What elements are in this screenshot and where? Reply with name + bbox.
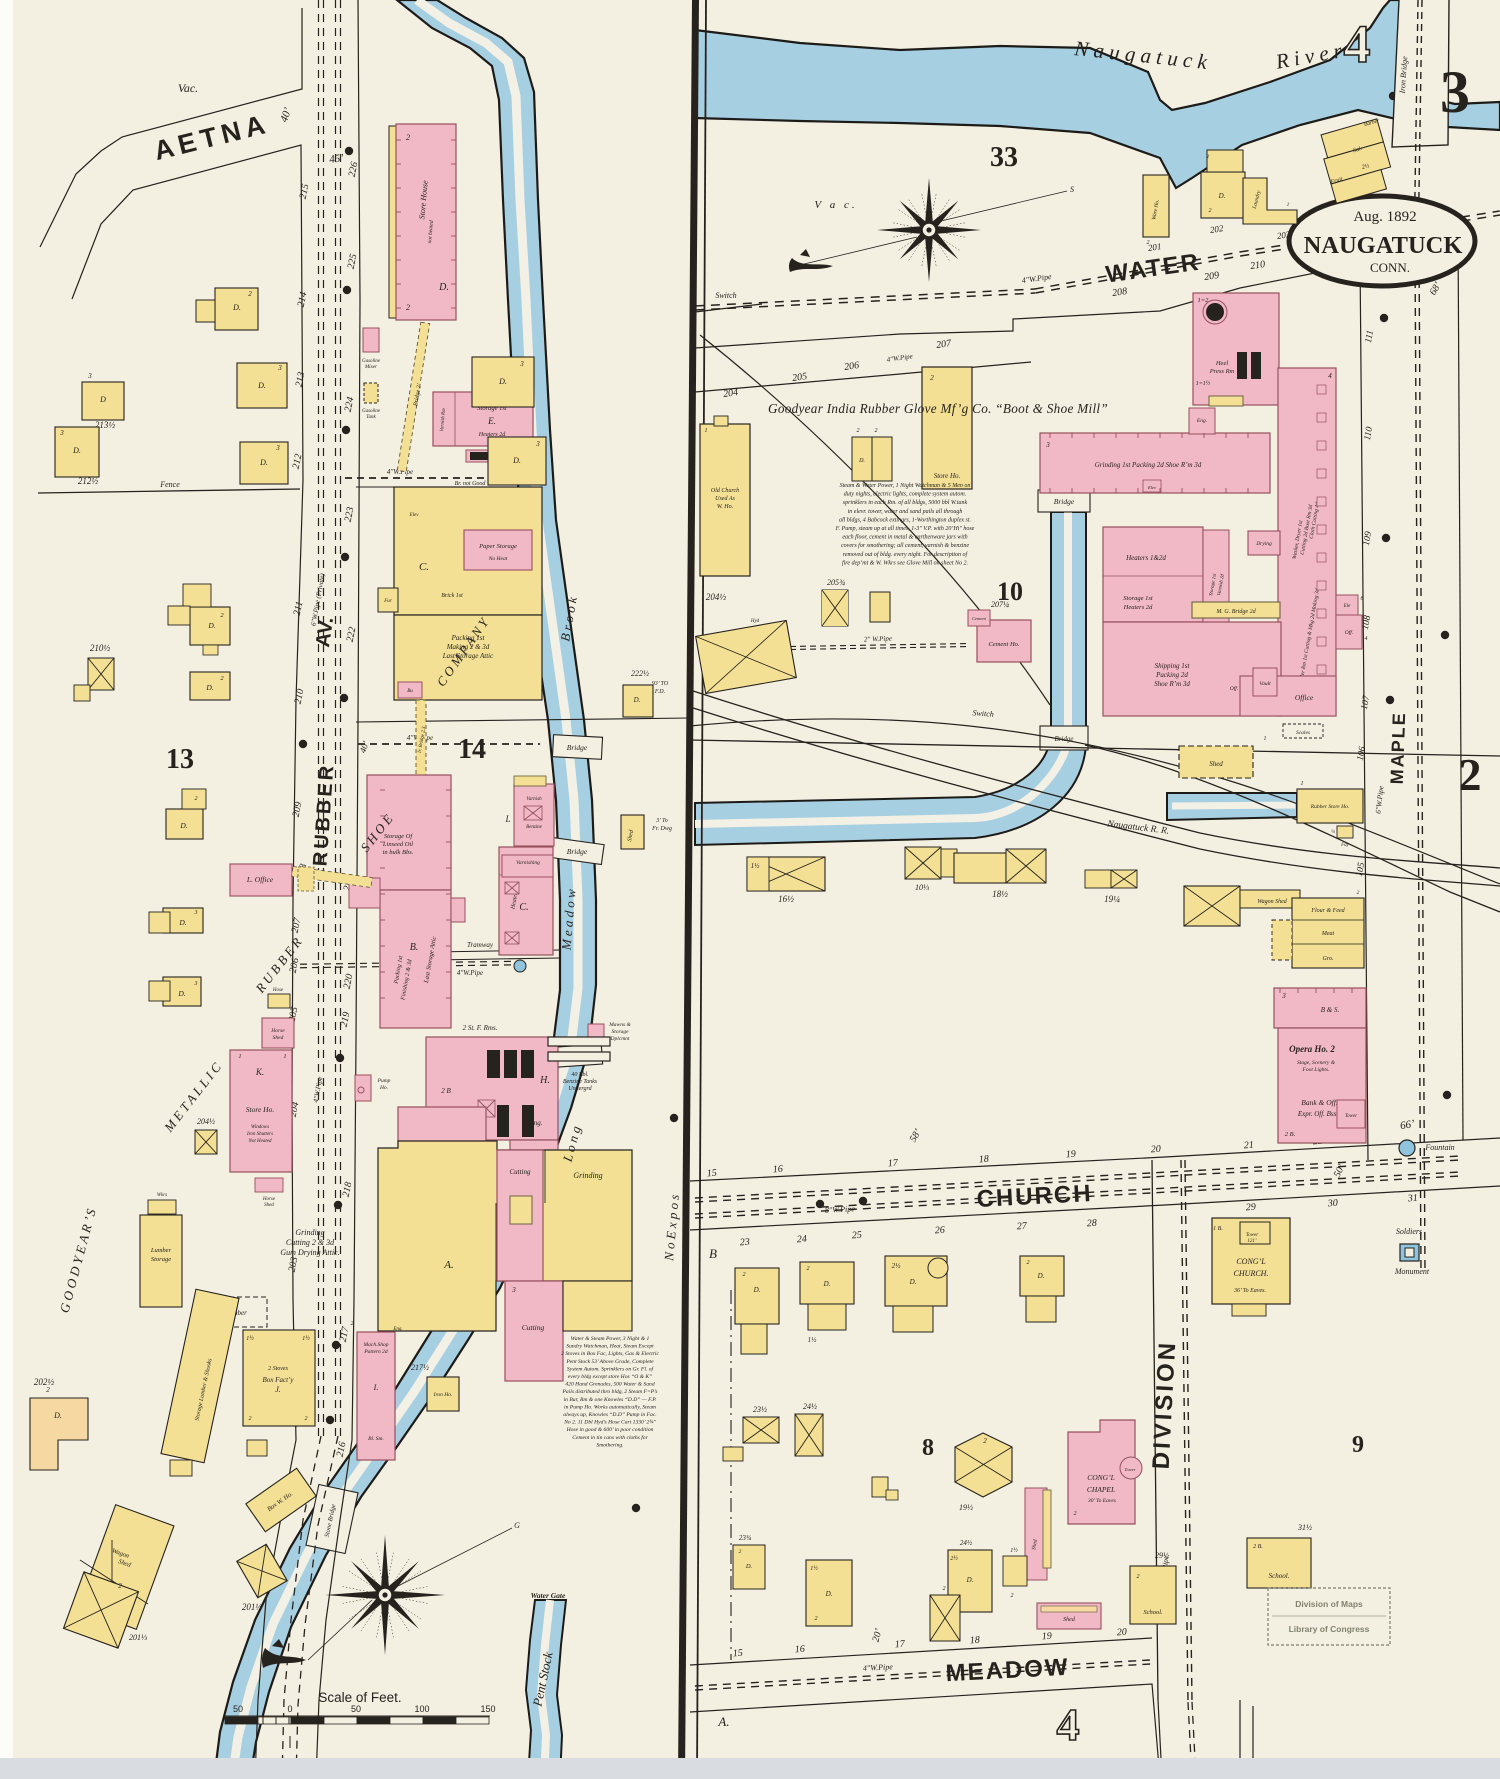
svg-text:2: 2 [1137,1574,1140,1580]
svg-text:Tower: Tower [1345,1114,1357,1119]
svg-text:Shed: Shed [273,1035,284,1041]
svg-text:D.: D. [823,1280,831,1288]
svg-text:Bl. Sm.: Bl. Sm. [368,1436,384,1442]
svg-text:Fountain: Fountain [1424,1143,1454,1152]
svg-text:2 B: 2 B [441,1087,451,1095]
svg-text:3: 3 [1440,59,1470,125]
svg-text:Wagon Shed: Wagon Shed [1257,899,1288,905]
svg-text:in Bur, Rm & one Knowles “D.D”: in Bur, Rm & one Knowles “D.D” — F.P. [564,1396,657,1403]
svg-text:Storage: Storage [611,1029,629,1035]
svg-text:33: 33 [990,142,1018,173]
svg-text:1: 1 [1299,890,1302,896]
svg-text:30: 30 [1326,1198,1338,1210]
svg-text:Pattern 2d: Pattern 2d [363,1349,388,1355]
svg-text:Opera Ho. 2: Opera Ho. 2 [1289,1044,1335,1054]
svg-text:2: 2 [807,1266,810,1272]
svg-text:Hyd: Hyd [750,619,760,624]
svg-text:1: 1 [1207,154,1210,160]
svg-text:Tower: Tower [1246,1233,1258,1238]
svg-text:4″W.Pipe: 4″W.Pipe [863,1662,894,1673]
svg-text:3: 3 [519,360,524,368]
svg-text:Cutting 2 & 3d: Cutting 2 & 3d [286,1238,335,1247]
svg-text:D.: D. [72,446,81,455]
svg-text:D.: D. [179,821,187,830]
svg-text:14: 14 [458,734,486,765]
svg-text:217½: 217½ [411,1363,429,1372]
svg-text:No 2. 11 Dbl Hyd’s Hose Cart: No 2. 11 Dbl Hyd’s Hose Cart 1330’ 2¾″ [563,1420,656,1426]
svg-text:150: 150 [480,1704,495,1714]
svg-text:CHURCH.: CHURCH. [1234,1269,1269,1278]
svg-text:2: 2 [305,1416,308,1422]
svg-text:15: 15 [732,1648,743,1660]
svg-text:S: S [1070,185,1074,194]
svg-text:2 St. F. Rms.: 2 St. F. Rms. [463,1024,498,1032]
svg-text:2: 2 [857,428,860,434]
svg-text:¼: ¼ [1331,830,1335,835]
svg-text:Windows: Windows [251,1125,269,1130]
svg-text:removed out of bldg. every nig: removed out of bldg. every night. For de… [843,551,969,558]
svg-text:D.: D. [909,1278,917,1286]
svg-text:MAPLE: MAPLE [1387,711,1410,785]
svg-text:18½: 18½ [992,889,1008,899]
svg-text:Rubber Store Ho.: Rubber Store Ho. [1310,804,1349,810]
svg-text:Eng.: Eng. [528,1119,542,1127]
svg-text:Shipping 1st: Shipping 1st [1155,662,1191,670]
svg-text:24: 24 [796,1234,807,1246]
svg-text:Bu: Bu [407,689,413,694]
svg-text:in Pump Ho. Works automaticall: in Pump Ho. Works automatically, Steam [564,1404,656,1410]
svg-text:2: 2 [406,133,410,142]
svg-text:31: 31 [1406,1193,1418,1205]
svg-text:Monument: Monument [1394,1267,1430,1276]
svg-text:207¼: 207¼ [991,600,1009,609]
svg-text:210: 210 [1249,259,1265,272]
svg-text:Packing 2d: Packing 2d [1155,671,1188,679]
svg-text:17: 17 [887,1158,899,1170]
svg-text:2: 2 [248,290,252,298]
svg-text:17: 17 [894,1639,906,1651]
svg-text:D.: D. [498,377,507,386]
svg-text:Undergrd: Undergrd [568,1086,592,1092]
svg-text:1 B.: 1 B. [1213,1226,1223,1232]
svg-text:3: 3 [535,440,540,448]
svg-text:20: 20 [1150,1144,1161,1156]
svg-text:31½: 31½ [1297,1523,1312,1532]
svg-text:1½: 1½ [751,862,761,870]
svg-text:19: 19 [1041,1631,1052,1643]
svg-text:Expr. Off. Bss.: Expr. Off. Bss. [1297,1110,1339,1118]
svg-text:Tower: Tower [1124,1467,1135,1472]
svg-text:30’ To Eaves: 30’ To Eaves [1087,1498,1116,1504]
svg-text:covers for smothering; all cem: covers for smothering; all cement, varni… [841,542,969,549]
svg-text:CONN.: CONN. [1370,260,1410,275]
svg-text:36’ To Eaves.: 36’ To Eaves. [1233,1288,1266,1294]
svg-text:24½: 24½ [960,1539,973,1547]
svg-text:School.: School. [1143,1609,1163,1616]
svg-text:Br. not Good: Br. not Good [455,481,487,487]
svg-text:205¾: 205¾ [827,578,845,587]
svg-text:K.: K. [255,1067,264,1077]
svg-text:204: 204 [722,387,738,400]
svg-text:Switch: Switch [972,708,994,718]
svg-text:Elev: Elev [1147,485,1156,490]
svg-text:2 B.: 2 B. [1253,1544,1263,1550]
svg-text:D.: D. [438,282,449,293]
svg-text:19¼: 19¼ [1104,894,1120,904]
svg-text:Box Fact’y: Box Fact’y [263,1376,295,1384]
svg-text:23: 23 [739,1237,750,1249]
svg-text:D.: D. [512,456,521,465]
svg-text:D.: D. [753,1286,761,1294]
svg-text:203: 203 [1276,229,1291,241]
svg-text:4: 4 [1365,635,1368,642]
svg-text:1½: 1½ [1010,1547,1018,1554]
svg-text:D.: D. [858,458,865,464]
svg-text:Water & Steam Power, 3 Night &: Water & Steam Power, 3 Night & 1 [571,1336,650,1342]
svg-text:4: 4 [1328,372,1332,380]
svg-text:Cement in tin cans with cloths: Cement in tin cans with cloths for [572,1434,648,1441]
svg-text:Horse: Horse [270,1028,285,1034]
svg-text:Off.: Off. [1345,629,1354,636]
svg-text:Gasoline: Gasoline [362,359,381,364]
svg-text:2½: 2½ [950,1555,958,1562]
svg-text:1½: 1½ [810,1565,818,1572]
svg-text:2: 2 [1027,1260,1030,1266]
svg-text:D.: D. [205,683,213,692]
svg-text:2 Stoves in Box Fac, Lights, G: 2 Stoves in Box Fac, Lights, Gas & Elect… [561,1351,659,1357]
svg-text:in elevr. tower, water and san: in elevr. tower, water and sand pails al… [848,509,963,515]
svg-text:121’: 121’ [1247,1239,1257,1244]
svg-text:28: 28 [1086,1218,1097,1230]
svg-text:4″W.Pipe: 4″W.Pipe [457,969,483,977]
svg-text:G: G [514,1521,520,1530]
svg-text:Hose: Hose [272,988,284,993]
svg-text:Bridge: Bridge [567,743,588,752]
svg-text:10⅓: 10⅓ [915,883,929,892]
svg-text:1½: 1½ [246,1335,254,1342]
svg-text:20: 20 [1116,1627,1127,1639]
svg-text:L. Office: L. Office [246,875,274,884]
svg-text:50: 50 [351,1704,361,1714]
svg-text:1: 1 [1264,736,1267,742]
svg-text:C.: C. [519,902,528,913]
svg-text:Switch: Switch [715,291,736,300]
svg-text:1½: 1½ [808,1336,818,1344]
svg-text:Fur: Fur [383,599,392,604]
svg-text:Gasoline: Gasoline [362,409,381,414]
svg-text:2: 2 [1357,890,1360,896]
svg-text:24½: 24½ [803,1402,817,1411]
svg-text:School.: School. [1269,1572,1290,1580]
svg-text:420 Hand Grenades, 500 Water &: 420 Hand Grenades, 500 Water & Sand [565,1382,654,1388]
svg-text:4: 4 [1344,14,1371,74]
svg-text:201: 201 [1147,241,1162,253]
svg-text:2: 2 [875,428,878,434]
svg-text:Goodyear India Rubber Glove Mf: Goodyear India Rubber Glove Mf’g Co. “Bo… [768,401,1108,416]
svg-text:B.: B. [410,942,419,953]
svg-text:in bulk Bbs.: in bulk Bbs. [383,849,414,856]
svg-text:all bldgs, 4 Babcock extingrs,: all bldgs, 4 Babcock extingrs, 1-Worthin… [839,516,971,523]
svg-text:2: 2 [930,374,934,382]
svg-text:Meat: Meat [1321,931,1335,937]
svg-text:Library of Congress: Library of Congress [1289,1624,1370,1634]
svg-text:Scales: Scales [1296,730,1310,736]
svg-text:Cutting: Cutting [509,1168,531,1176]
svg-text:J.: J. [275,1385,281,1394]
svg-text:Brick 1st: Brick 1st [441,593,463,599]
svg-text:D.: D. [53,1411,62,1420]
svg-text:205: 205 [791,371,807,384]
svg-text:CONG’L: CONG’L [1087,1473,1115,1482]
svg-text:No Heat: No Heat [488,556,508,562]
svg-text:Vac.: Vac. [178,81,198,95]
svg-text:D.: D. [232,303,241,312]
svg-text:Fence: Fence [159,480,180,489]
svg-text:208: 208 [1111,286,1127,299]
svg-text:6: 6 [1361,596,1364,602]
svg-text:2: 2 [739,1549,742,1555]
svg-text:Water Gate: Water Gate [531,1591,566,1600]
svg-text:3: 3 [194,910,198,916]
svg-text:15: 15 [706,1168,717,1180]
svg-text:D.: D. [1037,1272,1045,1280]
svg-text:40 Bbl.: 40 Bbl. [571,1071,588,1078]
svg-text:Steam & Water Power, 1 Night W: Steam & Water Power, 1 Night Watchman & … [840,483,971,489]
svg-text:D.: D. [745,1563,753,1570]
svg-text:each floor, cement in metal &: each floor, cement in metal & earthenwar… [842,534,967,541]
svg-text:H.: H. [539,1075,550,1086]
svg-text:Soldiers: Soldiers [1396,1227,1422,1236]
svg-text:B & S.: B & S. [1321,1006,1340,1014]
svg-text:Heel: Heel [1215,360,1228,367]
svg-text:19½: 19½ [959,1503,973,1512]
svg-text:202: 202 [1209,223,1224,235]
svg-text:1: 1 [1301,781,1304,787]
svg-text:Store Ho.: Store Ho. [246,1105,275,1114]
svg-text:Bridge: Bridge [1054,497,1075,506]
svg-text:Mawns &: Mawns & [608,1022,631,1028]
svg-text:Ho.: Ho. [379,1085,388,1091]
svg-text:1: 1 [705,428,708,434]
svg-text:F.D.: F.D. [654,689,665,695]
svg-text:D.: D. [966,1576,974,1584]
svg-text:206: 206 [843,360,859,373]
svg-text:Grinding: Grinding [573,1171,602,1180]
svg-text:CHAPEL: CHAPEL [1087,1485,1115,1494]
svg-text:3: 3 [275,444,280,452]
svg-text:Off.: Off. [1230,685,1239,692]
svg-text:Grinding 1st Packing 2d Shoe: Grinding 1st Packing 2d Shoe R’m 3d [1095,461,1202,469]
svg-text:W. Ho.: W. Ho. [717,504,733,510]
svg-text:204½: 204½ [706,592,727,602]
svg-text:Heaters 2d: Heaters 2d [1123,604,1153,611]
svg-text:Mach.Shop: Mach.Shop [363,1342,389,1348]
svg-text:2: 2 [118,1582,122,1590]
svg-text:2: 2 [351,1321,354,1327]
svg-text:Wkrs: Wkrs [157,1193,167,1198]
svg-text:8: 8 [922,1435,934,1461]
svg-text:Cement: Cement [972,616,986,621]
svg-text:3: 3 [59,429,64,437]
svg-text:Shed: Shed [1063,1617,1076,1623]
svg-text:Division of Maps: Division of Maps [1295,1599,1363,1609]
svg-text:201⅓: 201⅓ [129,1633,147,1642]
svg-text:D: D [99,395,106,404]
svg-text:A.: A. [717,1714,729,1729]
svg-text:Foot Lights.: Foot Lights. [1302,1067,1330,1073]
svg-text:Shed: Shed [264,1203,274,1208]
svg-text:Storage 1st: Storage 1st [1123,595,1153,602]
svg-text:V a c.: V a c. [814,199,857,211]
svg-text:2: 2 [743,1272,746,1278]
svg-text:1: 1 [239,1054,242,1060]
svg-text:Tank: Tank [366,415,376,420]
svg-text:Varnishing: Varnishing [516,860,540,866]
svg-text:D.: D. [178,918,186,927]
svg-text:D.: D. [259,458,268,467]
svg-text:2: 2 [195,796,198,802]
svg-text:Pump: Pump [377,1078,391,1084]
svg-text:Cement Ho.: Cement Ho. [988,641,1019,648]
svg-text:2: 2 [815,1616,818,1622]
svg-text:2: 2 [1209,208,1212,214]
svg-text:3: 3 [1045,441,1050,449]
svg-text:System Autom. Sprinklers on Gr: System Autom. Sprinklers on Gr. Fl. of [567,1365,655,1372]
svg-text:16: 16 [794,1644,805,1656]
svg-text:19: 19 [1065,1149,1076,1161]
svg-text:Gro.: Gro. [1323,956,1334,962]
svg-text:2½: 2½ [892,1262,902,1270]
svg-text:E.: E. [487,416,496,426]
svg-text:4: 4 [1057,1699,1080,1750]
svg-text:CONG’L: CONG’L [1236,1257,1266,1266]
svg-text:I.: I. [373,1383,379,1392]
svg-text:D.: D. [177,989,185,998]
svg-text:Sundry Watchman, Heat, Steam: Sundry Watchman, Heat, Steam Except [566,1344,654,1350]
svg-text:Store Ho.: Store Ho. [934,472,961,480]
svg-text:222½: 222½ [631,669,649,678]
svg-text:Not Heated: Not Heated [248,1139,272,1144]
svg-text:3: 3 [87,372,92,380]
svg-text:2 Stoves: 2 Stoves [268,1366,288,1372]
svg-text:27: 27 [1016,1221,1028,1233]
svg-text:3: 3 [277,364,282,372]
svg-text:D.: D. [207,621,215,630]
svg-text:Dplcmnt: Dplcmnt [610,1036,630,1042]
svg-text:Old Church: Old Church [711,488,739,494]
svg-text:1=1½: 1=1½ [1196,380,1211,387]
svg-text:29½: 29½ [1155,1551,1169,1560]
svg-text:Shoe R’m 3d: Shoe R’m 3d [1154,680,1190,688]
svg-text:A.: A. [443,1259,453,1271]
svg-text:Drying: Drying [1255,541,1272,547]
svg-text:3′ To: 3′ To [655,818,668,824]
svg-text:D.: D. [257,381,266,390]
svg-text:Benzine: Benzine [526,825,543,830]
svg-text:209: 209 [1203,270,1219,283]
svg-text:Varnish: Varnish [526,797,542,802]
svg-text:Cutting: Cutting [522,1323,545,1332]
svg-text:16½: 16½ [778,894,794,904]
svg-text:50: 50 [233,1704,243,1714]
svg-text:1: 1 [284,1054,287,1060]
svg-text:207: 207 [935,338,952,351]
svg-text:M. G. Bridge 2d: M. G. Bridge 2d [1215,609,1256,615]
svg-text:2: 2 [983,1437,987,1445]
svg-text:2: 2 [406,303,410,312]
svg-text:Iron Shutters: Iron Shutters [246,1132,273,1137]
svg-text:F. Pump, steam up at all times: F. Pump, steam up at all times, 1-3″ V.P… [835,526,975,532]
svg-text:Storage: Storage [151,1256,171,1263]
svg-text:25: 25 [851,1230,862,1242]
svg-text:2: 2 [249,1416,252,1422]
svg-text:29: 29 [1245,1202,1256,1214]
svg-text:Horse: Horse [262,1197,276,1202]
svg-text:B: B [709,1246,717,1261]
svg-text:Eng.: Eng. [1196,418,1207,424]
svg-text:Paper Storage: Paper Storage [478,543,517,550]
svg-text:duty nights, electric lights,: duty nights, electric lights, complete s… [844,492,966,498]
svg-text:13: 13 [166,744,194,775]
svg-text:201½: 201½ [242,1602,263,1612]
svg-text:Iron Ho.: Iron Ho. [433,1392,453,1398]
svg-text:Office: Office [1295,693,1314,702]
svg-text:3: 3 [1281,992,1286,1000]
svg-text:Hose in good & 600’ in poor co: Hose in good & 600’ in poor condition [566,1427,654,1433]
svg-text:Mixer: Mixer [364,365,377,370]
svg-text:Bank & Offs: Bank & Offs [1301,1098,1339,1107]
svg-text:93’ TO: 93’ TO [652,681,669,687]
svg-text:66’: 66’ [1399,1118,1416,1132]
svg-text:100: 100 [414,1704,429,1714]
svg-text:Bridge: Bridge [567,847,588,856]
svg-text:Smothering.: Smothering. [596,1442,623,1448]
svg-text:1=2: 1=2 [1198,297,1210,304]
svg-text:2: 2 [1011,1593,1014,1599]
svg-text:Scale of Feet.: Scale of Feet. [318,1690,401,1705]
svg-text:sprinklers in each Rm. of all: sprinklers in each Rm. of all bldgs, 500… [843,499,968,506]
svg-text:C.: C. [419,561,429,573]
svg-text:3: 3 [194,981,198,987]
svg-text:26: 26 [934,1225,945,1237]
svg-text:Benzine Tanks: Benzine Tanks [563,1079,598,1085]
svg-text:23¾: 23¾ [739,1534,752,1542]
svg-text:Shed: Shed [1209,760,1223,768]
svg-text:Lumber: Lumber [150,1247,172,1254]
svg-text:8″W.Pipe: 8″W.Pipe [825,1204,856,1215]
svg-text:2 B.: 2 B. [1285,1131,1296,1138]
svg-text:2: 2 [46,1386,50,1394]
svg-text:Flour & Feed: Flour & Feed [1310,908,1345,914]
svg-text:Vault: Vault [1259,681,1271,687]
svg-text:18: 18 [978,1154,989,1166]
svg-text:Press Rm: Press Rm [1209,368,1235,375]
svg-text:Pent Stock 53’ Above Grade, Co: Pent Stock 53’ Above Grade, Complete [565,1359,654,1365]
svg-text:Used As: Used As [715,496,735,502]
svg-text:Tramway: Tramway [467,941,494,949]
svg-text:Elev: Elev [409,513,420,518]
svg-text:D.: D. [825,1590,833,1598]
svg-text:202½: 202½ [34,1377,55,1387]
svg-text:45’: 45’ [328,152,345,166]
svg-text:204½: 204½ [197,1117,215,1126]
svg-text:Eng.: Eng. [392,1327,402,1332]
svg-text:2: 2 [1459,749,1482,800]
svg-text:Linseed Oil: Linseed Oil [382,841,413,848]
svg-text:NAUGATUCK: NAUGATUCK [1304,232,1463,259]
svg-text:21: 21 [1243,1140,1254,1152]
svg-text:1½: 1½ [302,1335,310,1342]
